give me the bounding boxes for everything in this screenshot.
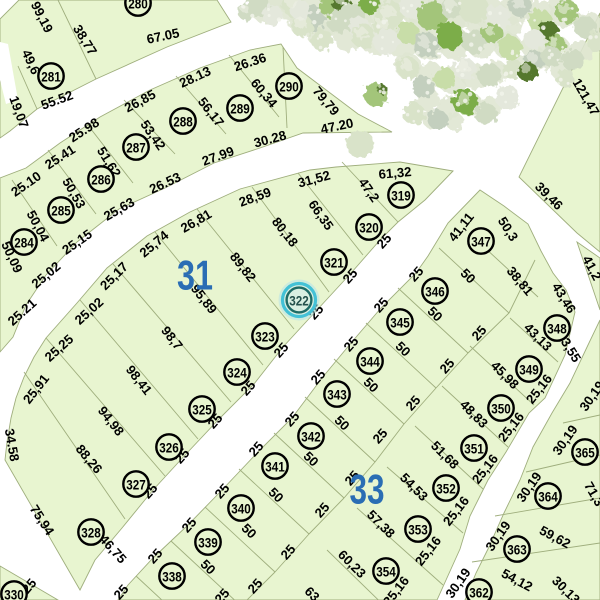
svg-text:362: 362 — [469, 585, 489, 600]
svg-text:354: 354 — [376, 564, 396, 580]
svg-text:340: 340 — [231, 501, 251, 517]
svg-text:323: 323 — [255, 329, 275, 345]
svg-text:349: 349 — [519, 362, 539, 378]
svg-text:284: 284 — [14, 235, 34, 251]
svg-text:364: 364 — [538, 489, 558, 505]
svg-text:288: 288 — [173, 114, 193, 130]
svg-text:346: 346 — [425, 284, 445, 300]
svg-text:363: 363 — [507, 542, 527, 558]
svg-text:345: 345 — [390, 315, 410, 331]
svg-text:344: 344 — [360, 354, 380, 370]
svg-text:343: 343 — [327, 387, 347, 403]
svg-text:330: 330 — [4, 587, 24, 600]
svg-text:338: 338 — [162, 569, 182, 585]
svg-text:33: 33 — [350, 466, 385, 513]
svg-text:327: 327 — [126, 477, 146, 493]
svg-text:326: 326 — [159, 440, 179, 456]
svg-text:280: 280 — [128, 0, 148, 12]
svg-text:324: 324 — [227, 365, 247, 381]
svg-text:290: 290 — [279, 79, 299, 95]
svg-text:289: 289 — [230, 101, 250, 117]
svg-text:281: 281 — [41, 69, 61, 85]
svg-text:319: 319 — [391, 188, 411, 204]
svg-text:353: 353 — [408, 522, 428, 538]
svg-text:286: 286 — [91, 172, 111, 188]
svg-text:347: 347 — [471, 234, 491, 250]
svg-text:320: 320 — [359, 220, 379, 236]
svg-text:350: 350 — [491, 401, 511, 417]
svg-text:325: 325 — [192, 402, 212, 418]
svg-text:348: 348 — [547, 321, 567, 337]
svg-text:285: 285 — [51, 203, 71, 219]
svg-text:31: 31 — [177, 252, 213, 299]
svg-text:321: 321 — [324, 255, 344, 271]
svg-text:322: 322 — [289, 293, 309, 309]
svg-text:287: 287 — [126, 140, 146, 156]
svg-text:341: 341 — [265, 459, 285, 475]
svg-text:328: 328 — [81, 525, 101, 541]
svg-text:365: 365 — [575, 445, 595, 461]
svg-text:351: 351 — [464, 441, 484, 457]
svg-text:342: 342 — [301, 429, 321, 445]
svg-text:61,32: 61,32 — [378, 164, 412, 182]
svg-text:339: 339 — [198, 535, 218, 551]
svg-text:352: 352 — [436, 481, 456, 497]
